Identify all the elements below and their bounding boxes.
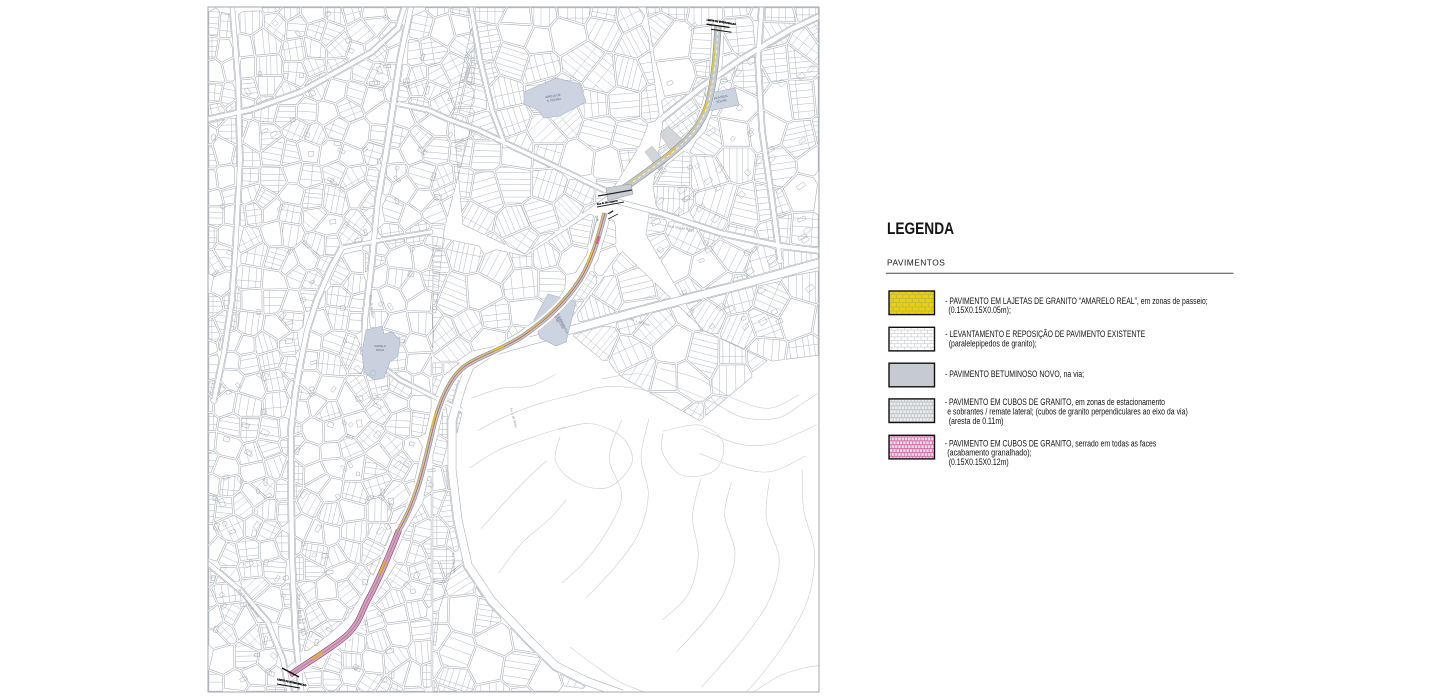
svg-text:(0.15X0.15X0.12m): (0.15X0.15X0.12m) (949, 457, 1009, 467)
svg-text:(0.15X0.15X0.05m);: (0.15X0.15X0.05m); (948, 305, 1011, 315)
svg-text:LEGENDA: LEGENDA (887, 220, 954, 238)
svg-text:PAVIMENTOS: PAVIMENTOS (887, 257, 945, 267)
svg-text:(aresta de 0.11m): (aresta de 0.11m) (949, 416, 1004, 426)
svg-text:- PAVIMENTO EM CUBOS DE GRANIT: - PAVIMENTO EM CUBOS DE GRANITO, em zona… (945, 397, 1165, 407)
svg-text:(paralelepipedos de granito);: (paralelepipedos de granito); (949, 338, 1037, 348)
svg-text:- PAVIMENTO BETUMINOSO NOVO, n: - PAVIMENTO BETUMINOSO NOVO, na via; (945, 369, 1084, 379)
svg-text:NOVA: NOVA (376, 348, 384, 352)
